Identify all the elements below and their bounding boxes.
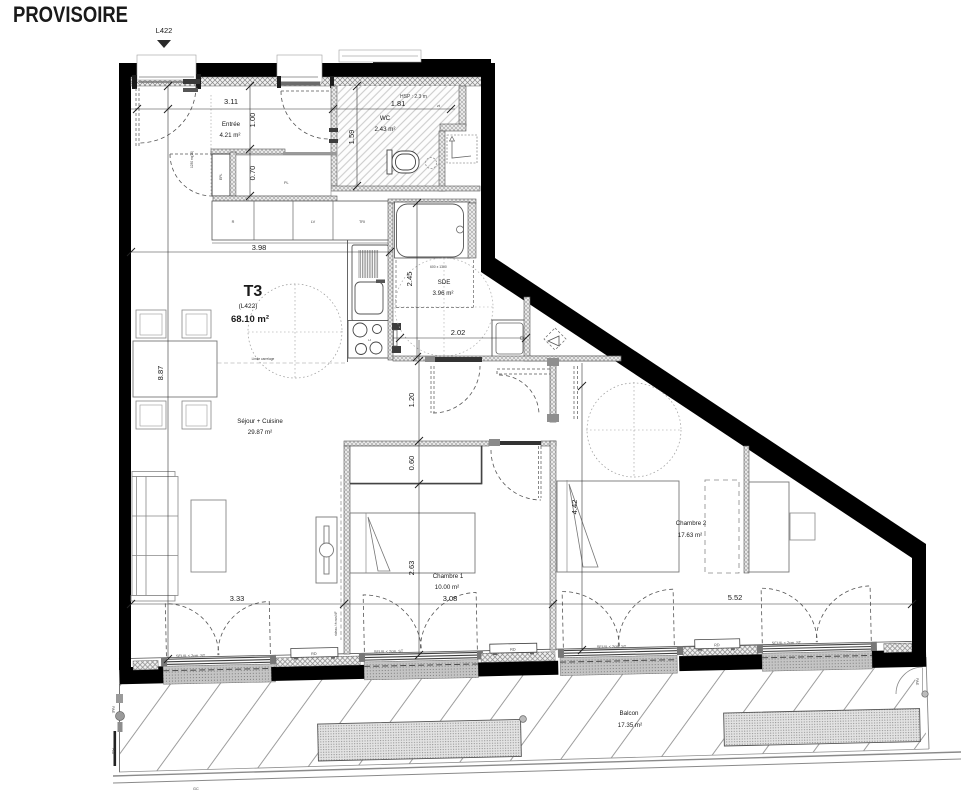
svg-text:Chambre 1: Chambre 1 — [433, 573, 464, 580]
svg-text:SEUIL < 2cm. ST: SEUIL < 2cm. ST — [374, 649, 404, 654]
svg-text:LV: LV — [311, 220, 316, 224]
svg-text:1.59: 1.59 — [347, 130, 356, 145]
svg-text:2.63: 2.63 — [407, 561, 416, 576]
svg-text:RD: RD — [311, 652, 317, 656]
svg-text:SDE: SDE — [438, 279, 451, 286]
svg-text:5.52: 5.52 — [728, 593, 743, 602]
svg-text:68.10 m²: 68.10 m² — [231, 314, 269, 325]
svg-text:Balcon: Balcon — [620, 710, 639, 717]
svg-text:17.63 m²: 17.63 m² — [678, 532, 702, 539]
svg-text:1.00: 1.00 — [248, 113, 257, 128]
svg-text:WC: WC — [380, 115, 391, 122]
svg-text:Entrée: Entrée — [222, 121, 241, 128]
svg-text:R: R — [232, 220, 235, 224]
svg-text:Séjour + Cuisine: Séjour + Cuisine — [237, 418, 283, 425]
svg-text:SEUIL < 2cm. ST: SEUIL < 2cm. ST — [176, 654, 206, 659]
svg-text:Limite carrelage: Limite carrelage — [252, 357, 275, 361]
svg-text:1230 eq(20): 1230 eq(20) — [190, 151, 194, 168]
svg-text:17.35 m²: 17.35 m² — [618, 722, 642, 729]
svg-text:TRI: TRI — [359, 220, 365, 224]
svg-text:4.42: 4.42 — [570, 500, 579, 515]
svg-text:3.98: 3.98 — [252, 243, 267, 252]
svg-text:rideau / écran NF: rideau / écran NF — [334, 611, 338, 636]
svg-text:L422: L422 — [156, 26, 173, 35]
svg-text:PL: PL — [284, 181, 289, 185]
svg-text:RD: RD — [714, 643, 720, 647]
svg-text:PAE: PAE — [111, 706, 115, 714]
svg-text:8.87: 8.87 — [156, 366, 165, 381]
svg-text:29.87 m²: 29.87 m² — [248, 429, 272, 436]
svg-text:RD: RD — [510, 648, 516, 652]
svg-text:PAI: PAI — [111, 748, 115, 754]
svg-text:LJ: LJ — [368, 338, 372, 342]
svg-text:PROVISOIRE: PROVISOIRE — [13, 2, 128, 27]
svg-text:T3: T3 — [244, 283, 263, 300]
svg-text:3.96 m²: 3.96 m² — [433, 290, 454, 297]
svg-text:1.81: 1.81 — [391, 99, 406, 108]
svg-text:SEUIL < 2cm. ST: SEUIL < 2cm. ST — [597, 645, 627, 650]
svg-text:600 x 1300: 600 x 1300 — [430, 265, 447, 269]
svg-text:2.43 m²: 2.43 m² — [375, 126, 396, 133]
svg-text:4.21 m²: 4.21 m² — [220, 132, 241, 139]
svg-text:0.60: 0.60 — [407, 456, 416, 471]
svg-text:SEUIL < 2cm. ST: SEUIL < 2cm. ST — [772, 641, 802, 646]
svg-text:0.70: 0.70 — [248, 166, 257, 181]
svg-text:3.11: 3.11 — [224, 97, 238, 106]
svg-text:2.02: 2.02 — [451, 328, 466, 337]
svg-text:EPL: EPL — [219, 173, 223, 180]
svg-text:1.20: 1.20 — [407, 393, 416, 408]
svg-text:PAE: PAE — [915, 678, 919, 686]
svg-text:10.00 m²: 10.00 m² — [435, 584, 459, 591]
svg-text:Chambre 2: Chambre 2 — [676, 520, 707, 527]
svg-text:3.08: 3.08 — [443, 594, 458, 603]
svg-text:3.33: 3.33 — [230, 594, 245, 603]
svg-text:2.45: 2.45 — [405, 272, 414, 287]
svg-text:GC: GC — [193, 787, 199, 791]
